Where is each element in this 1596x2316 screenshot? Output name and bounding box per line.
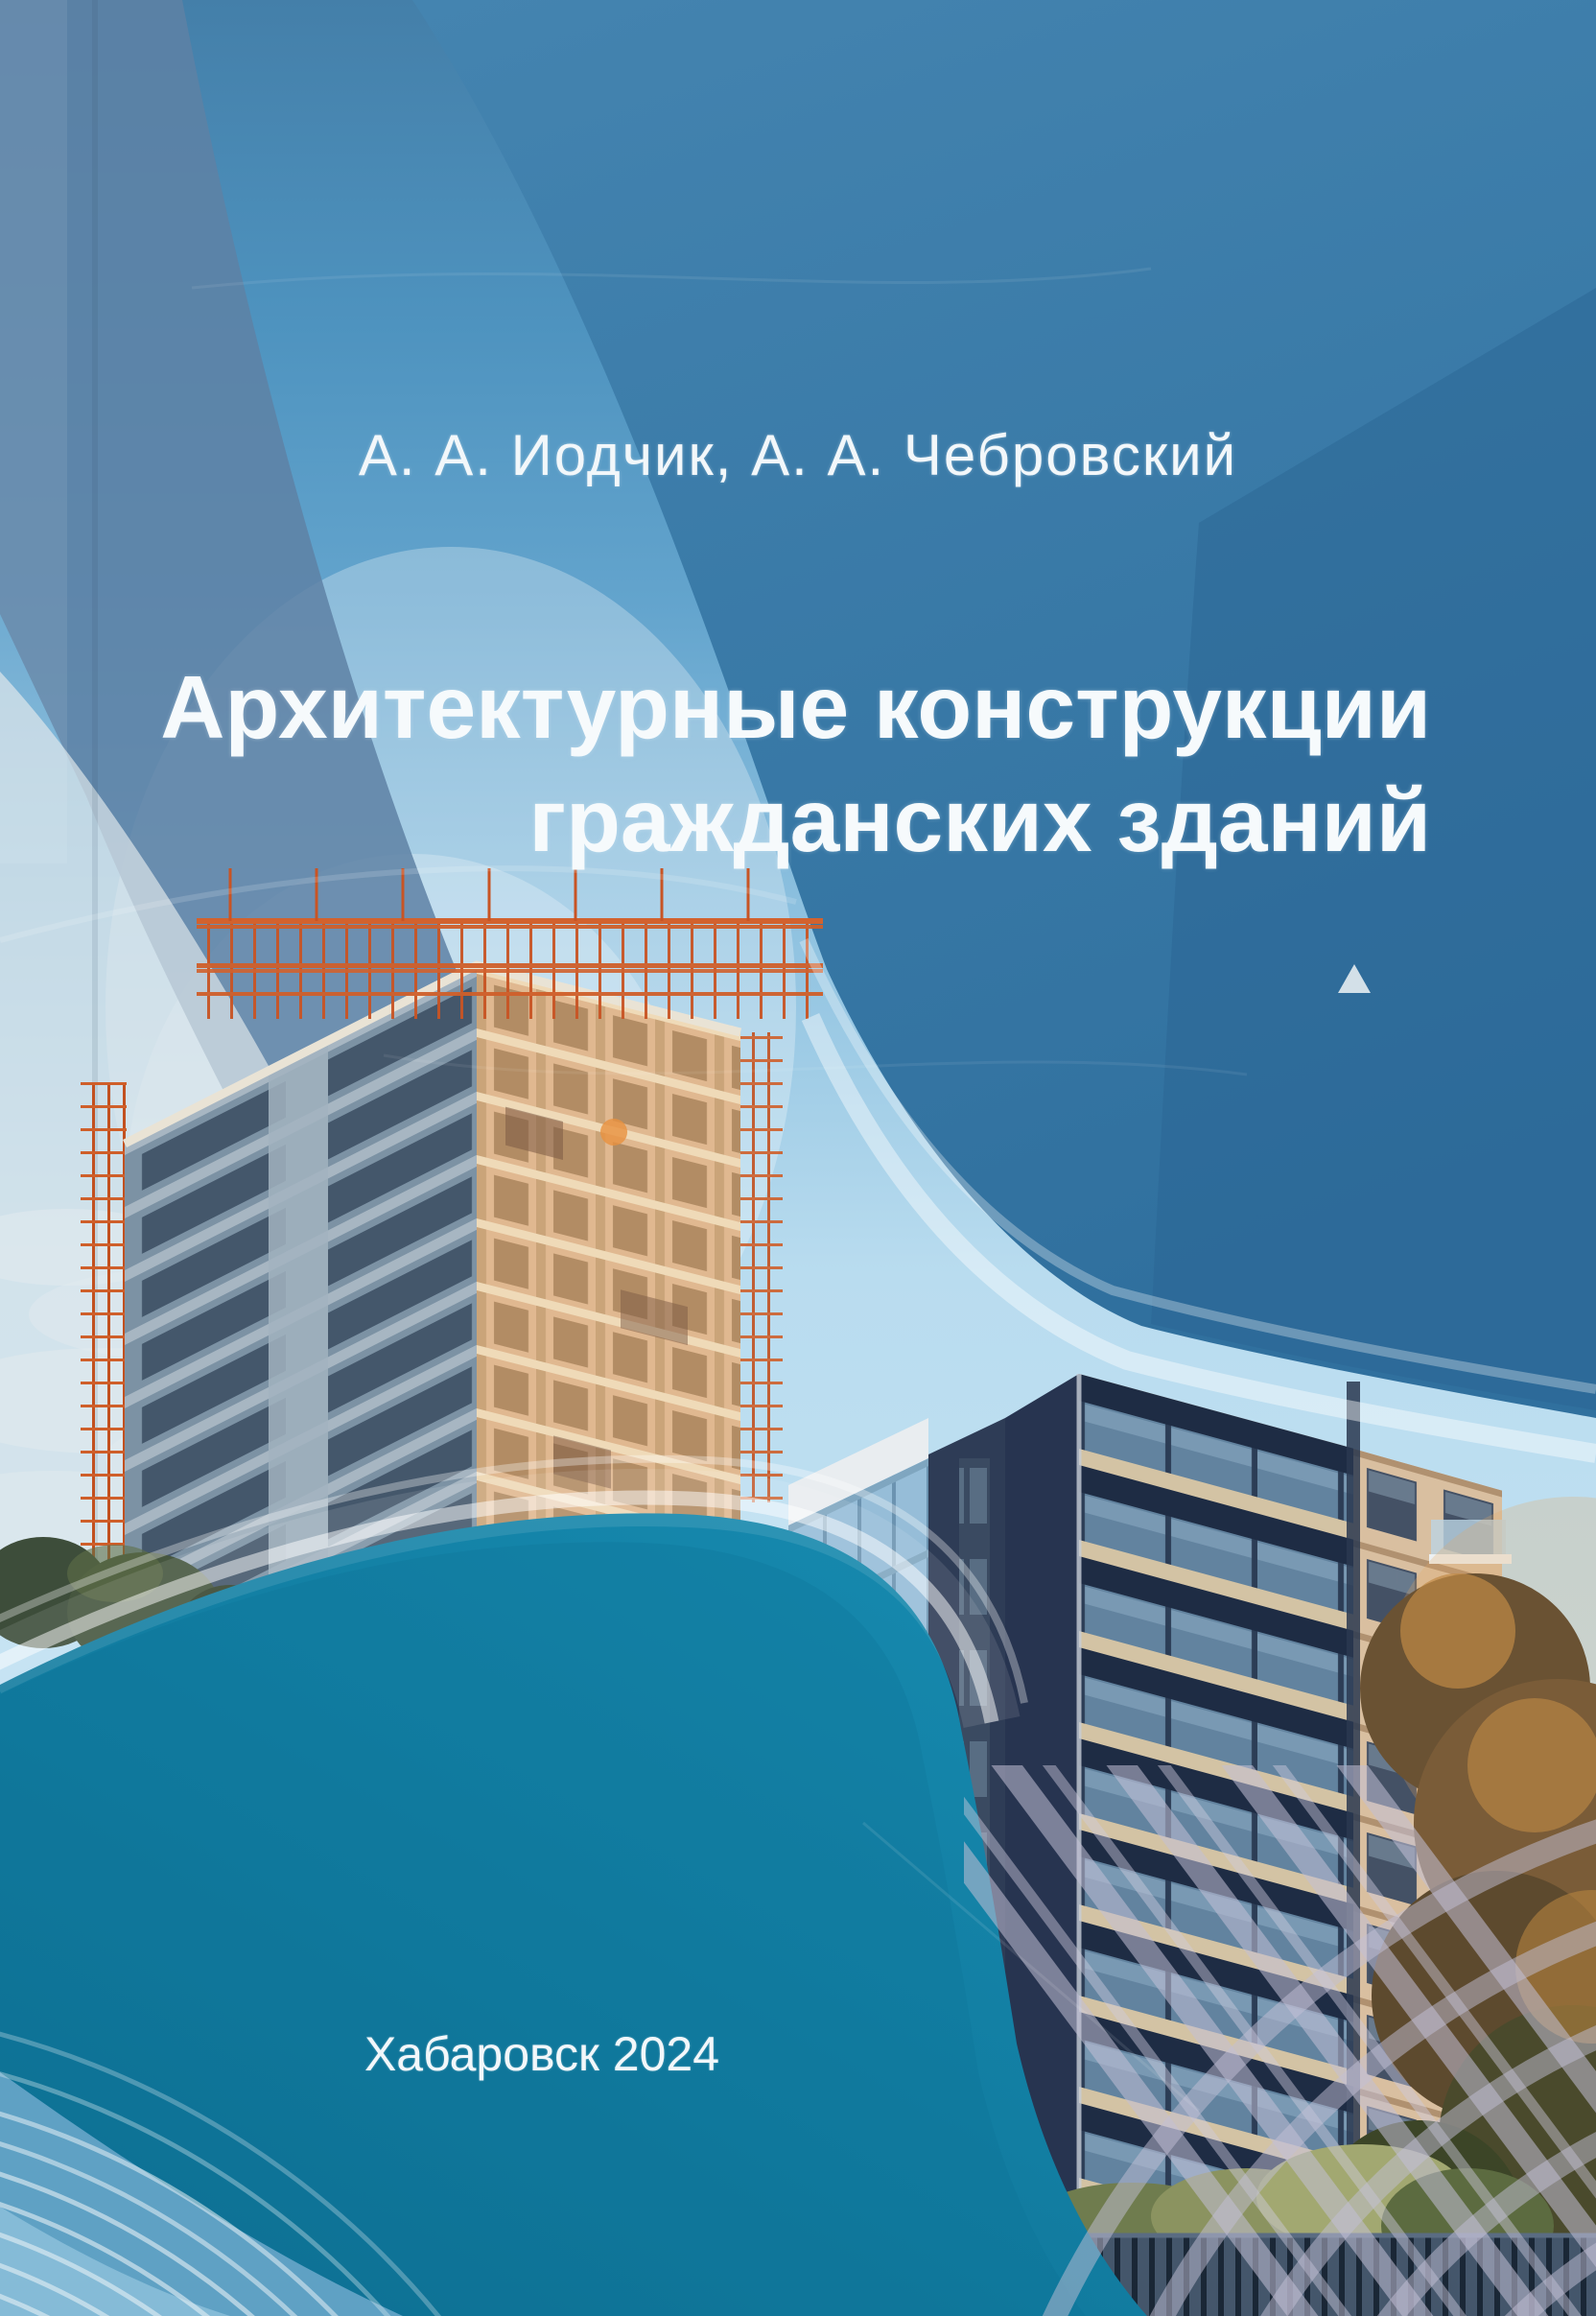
title-line-2: гражданских зданий <box>160 764 1431 877</box>
title-line-1: Архитектурные конструкции <box>160 650 1431 764</box>
author-line: А. А. Иодчик, А. А. Чебровский <box>0 422 1596 488</box>
book-cover: А. А. Иодчик, А. А. Чебровский Архитекту… <box>0 0 1596 2316</box>
cover-art <box>0 0 1596 2316</box>
imprint-city-year: Хабаровск 2024 <box>345 2026 739 2082</box>
book-title: Архитектурные конструкции гражданских зд… <box>160 650 1431 877</box>
